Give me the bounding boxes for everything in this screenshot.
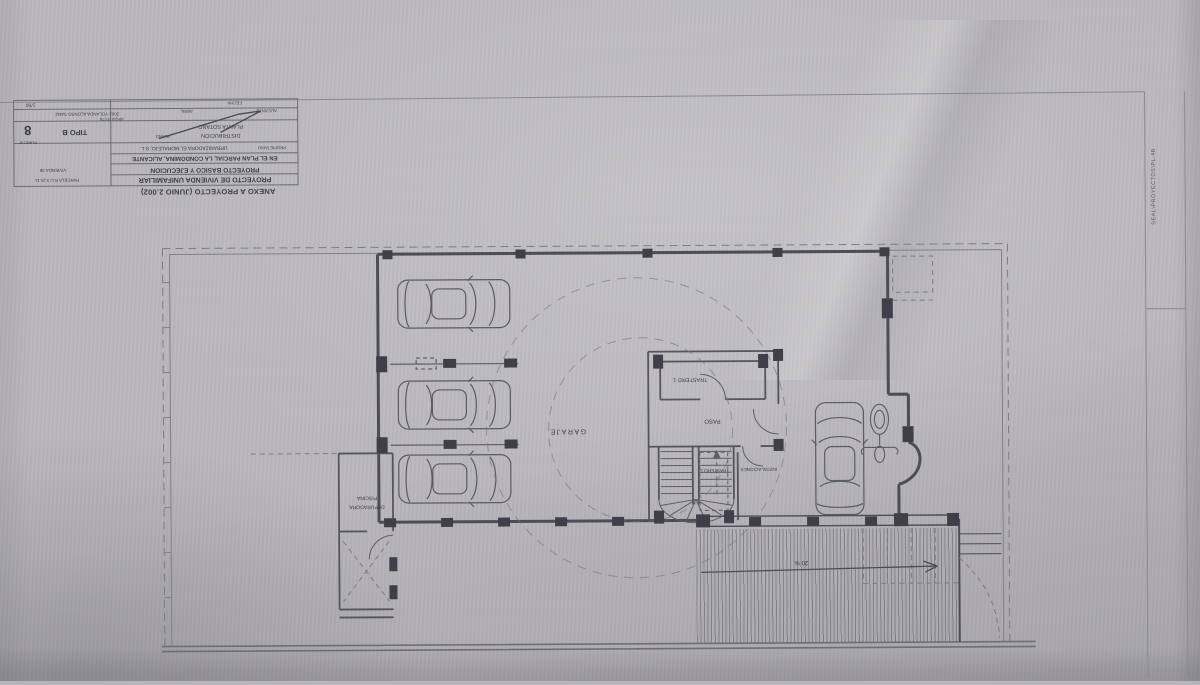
scooter-top-view [861, 404, 898, 462]
titleblock-plan-name: PLANTA SOTANO [182, 122, 260, 128]
ramp-slope-label: 20 % [781, 559, 821, 566]
car-top-view [399, 451, 511, 508]
room-label-hall: PASO [692, 417, 732, 424]
titleblock-parcel: PARCELA R.U 3.25.11 [15, 177, 99, 182]
ramp-arrow [701, 534, 1001, 574]
interior-walls [338, 351, 780, 618]
room-label-storage1: TRASTERO 1 [664, 375, 716, 381]
plan-linework [0, 0, 1200, 685]
titleblock-city: ALICANTE [245, 108, 289, 113]
staircase [659, 450, 734, 523]
drawing-sheet: ANEXO A PROYECTO (JUNIO 2.002) PROYECTO … [0, 0, 1200, 685]
titleblock-owner-label: PROPIETARIO [249, 145, 295, 150]
titleblock-project-line3: EN EL PLAN PARCIAL LA CONDOMINA, ALICANT… [116, 154, 294, 161]
room-label-garage: GARAJE [533, 427, 603, 435]
titleblock-type: TIPO B [51, 128, 99, 136]
photographed-floor-plan: ANEXO A PROYECTO (JUNIO 2.002) PROYECTO … [0, 0, 1200, 681]
titleblock-month: ABRIL [171, 108, 203, 113]
car-top-view [398, 377, 510, 434]
parking-bays [390, 357, 519, 445]
titleblock-scale: 1/50 [17, 101, 45, 106]
titleblock-owner: URBANIZADORA EL MORALEJO, S.L. [114, 144, 254, 150]
plot-boundary [159, 249, 1035, 651]
titleblock-plan-label: PLANO [147, 133, 179, 138]
room-label-utilities: INSTALACIONES [737, 466, 781, 471]
room-label-pool2: DEPURADORA [343, 503, 391, 509]
margin-file-note: SEAL\PROYECTOS\PL.4B [1151, 105, 1158, 225]
titleblock-sheet-number: 8 [19, 123, 37, 137]
car-top-view [398, 276, 510, 333]
columns [375, 247, 959, 599]
titleblock-date-label: FECHA [219, 100, 251, 105]
titleblock-architect-label: ARQUITECTA [91, 117, 133, 121]
titleblock-plan-name2: DISTRIBUCION [182, 131, 260, 137]
titleblock-project-line2: PROYECTO BASICO Y EJECUCION [116, 165, 294, 173]
titleblock-architect: 2002 YOLANDA ALONSO SANZ [15, 111, 160, 116]
turning-radius-arcs [486, 277, 788, 579]
room-label-storage2: TRASTERO 2 [698, 467, 732, 472]
titleblock-dwelling: VIVIENDA 38 [17, 167, 89, 172]
building-walls [377, 251, 959, 645]
titleblock-sheet-label: PLANO N° [13, 140, 43, 144]
room-label-pool1: PISCINA [343, 494, 391, 500]
car-top-view [811, 402, 868, 514]
titleblock-annex: ANEXO A PROYECTO (JUNIO 2.002) [102, 187, 314, 196]
titleblock-project: PROYECTO DE VIVIENDA UNIFAMILIAR [116, 175, 294, 183]
